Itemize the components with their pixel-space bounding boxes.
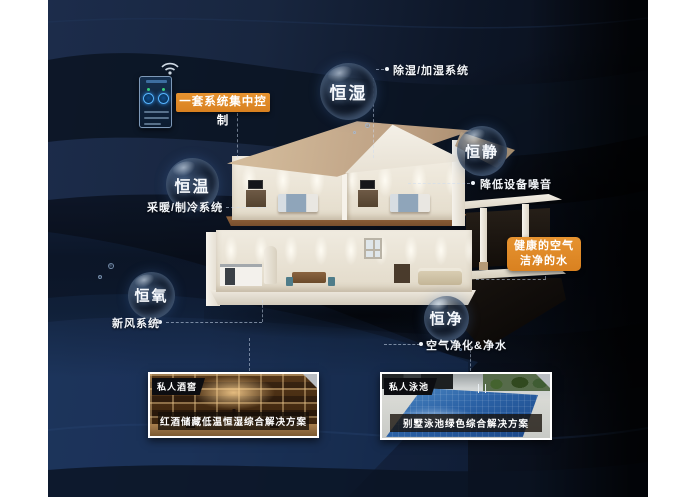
- kitchen-appliance: [225, 268, 235, 285]
- bubble-hengyang: 恒氧: [128, 272, 175, 319]
- bedroom-tv: [248, 180, 263, 189]
- panel-row: [144, 111, 169, 113]
- bedroom-bed: [278, 194, 318, 212]
- panel-row: [144, 123, 161, 125]
- healthy-callout-line1: 健康的空气: [507, 239, 581, 254]
- connector-dot: [385, 67, 389, 71]
- photo-tag: 私人泳池: [384, 378, 437, 395]
- panel-row: [144, 117, 169, 119]
- connector-line: [166, 322, 262, 323]
- dining-table: [292, 272, 326, 283]
- photo-caption: 红酒储藏低温恒湿综合解决方案: [158, 412, 308, 430]
- dial-icon: [158, 93, 169, 104]
- connector-line: [226, 207, 266, 208]
- bubble-hengwen-label: 恒温: [174, 173, 210, 197]
- porch-canopy: [450, 194, 562, 210]
- bubble-hengshi-label: 恒湿: [330, 79, 368, 104]
- connector-dot: [471, 181, 475, 185]
- bedroom-dresser: [358, 190, 378, 207]
- connector-line: [384, 344, 420, 345]
- status-led: [147, 88, 150, 91]
- poster-page: 一套系统集中控制 健康的空气 洁净的水 恒湿 除湿/加湿系统 恒静 降低设备噪音…: [0, 0, 700, 497]
- photo-tag: 私人酒窖: [152, 378, 205, 395]
- mini-bubble: [353, 131, 356, 134]
- healthy-callout: 健康的空气 洁净的水: [507, 237, 581, 271]
- wine-cellar-photo-card: 私人酒窖 红酒储藏低温恒湿综合解决方案: [148, 372, 319, 438]
- status-led: [162, 88, 165, 91]
- tv-cabinet: [394, 264, 410, 283]
- porch-column: [480, 208, 487, 270]
- wifi-icon: [159, 55, 181, 75]
- photo-caption: 别墅泳池绿色综合解决方案: [390, 414, 541, 432]
- connector-line: [237, 113, 238, 158]
- bedroom-dresser: [246, 190, 266, 207]
- smart-control-panel: [139, 76, 172, 128]
- connector-line: [545, 271, 546, 279]
- ground-floor: [216, 230, 472, 292]
- healthy-callout-line2: 洁净的水: [507, 254, 581, 269]
- dining-chair: [286, 277, 293, 286]
- window: [364, 238, 382, 259]
- connector-line: [376, 69, 384, 70]
- hengjing2-desc-label: 空气净化&净水: [426, 337, 507, 353]
- bedroom-bed: [390, 194, 430, 212]
- connector-line: [262, 300, 263, 322]
- bubble-hengshi: 恒湿: [320, 63, 377, 120]
- pool-ladder: [478, 384, 486, 393]
- dining-chair: [328, 277, 335, 286]
- connector-line: [249, 338, 250, 371]
- connector-line: [476, 279, 546, 280]
- bubble-hengyang-label: 恒氧: [134, 285, 168, 306]
- bubble-hengjing2-label: 恒净: [429, 308, 463, 329]
- corner-ribbon-icon: [303, 374, 317, 388]
- hengwen-desc-label: 采暖/制冷系统: [147, 199, 223, 215]
- connector-dot: [419, 342, 423, 346]
- control-callout: 一套系统集中控制: [176, 93, 270, 112]
- mini-bubble: [365, 123, 370, 128]
- dial-icon: [143, 93, 154, 104]
- bubble-hengjing-label: 恒静: [465, 141, 499, 162]
- hengyang-desc-label: 新风系统: [112, 315, 160, 331]
- sofa: [418, 268, 462, 285]
- hengjing-desc-label: 降低设备噪音: [480, 176, 552, 192]
- mini-bubble: [108, 263, 114, 269]
- pool-photo-card: 私人泳池 别墅泳池绿色综合解决方案: [380, 372, 552, 440]
- panel-header: [146, 80, 167, 83]
- hengshi-desc-label: 除湿/加湿系统: [393, 62, 469, 78]
- connector-line: [408, 183, 470, 184]
- bubble-hengjing2: 恒净: [424, 296, 469, 341]
- mini-bubble: [98, 275, 102, 279]
- corner-ribbon-icon: [536, 374, 550, 388]
- water-tank: [264, 246, 277, 284]
- bubble-hengjing: 恒静: [457, 126, 507, 176]
- bedroom-tv: [360, 180, 375, 189]
